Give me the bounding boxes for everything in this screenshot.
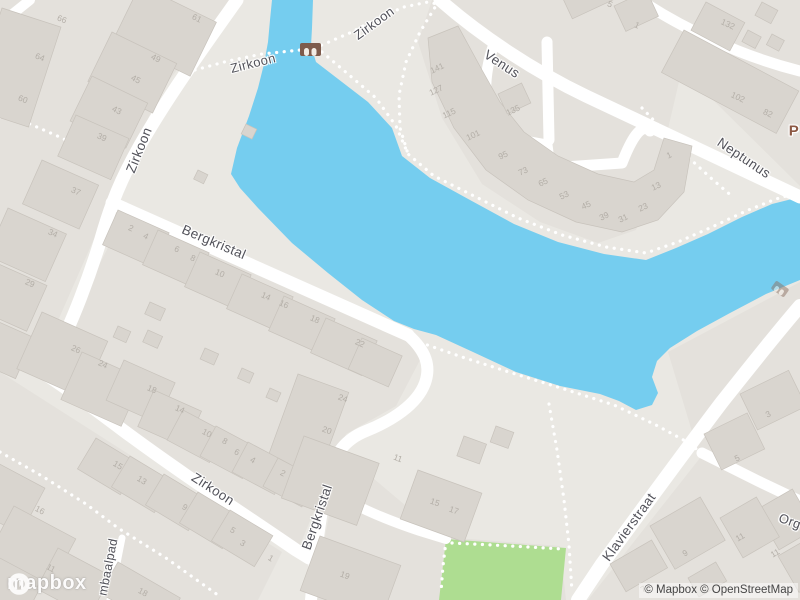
park-area bbox=[439, 539, 566, 600]
mapbox-logo-icon bbox=[7, 572, 31, 596]
map-base-tiles bbox=[0, 0, 800, 600]
place-label-partial: P bbox=[789, 123, 799, 140]
map-attribution[interactable]: © Mapbox © OpenStreetMap bbox=[639, 583, 798, 598]
map-canvas[interactable]: Zirkoon Zirkoon Zirkoon Venus Neptunus B… bbox=[0, 0, 800, 600]
bridge-icon bbox=[300, 43, 321, 56]
park-layer bbox=[439, 539, 566, 600]
mapbox-logo[interactable]: mapbox bbox=[7, 572, 87, 595]
